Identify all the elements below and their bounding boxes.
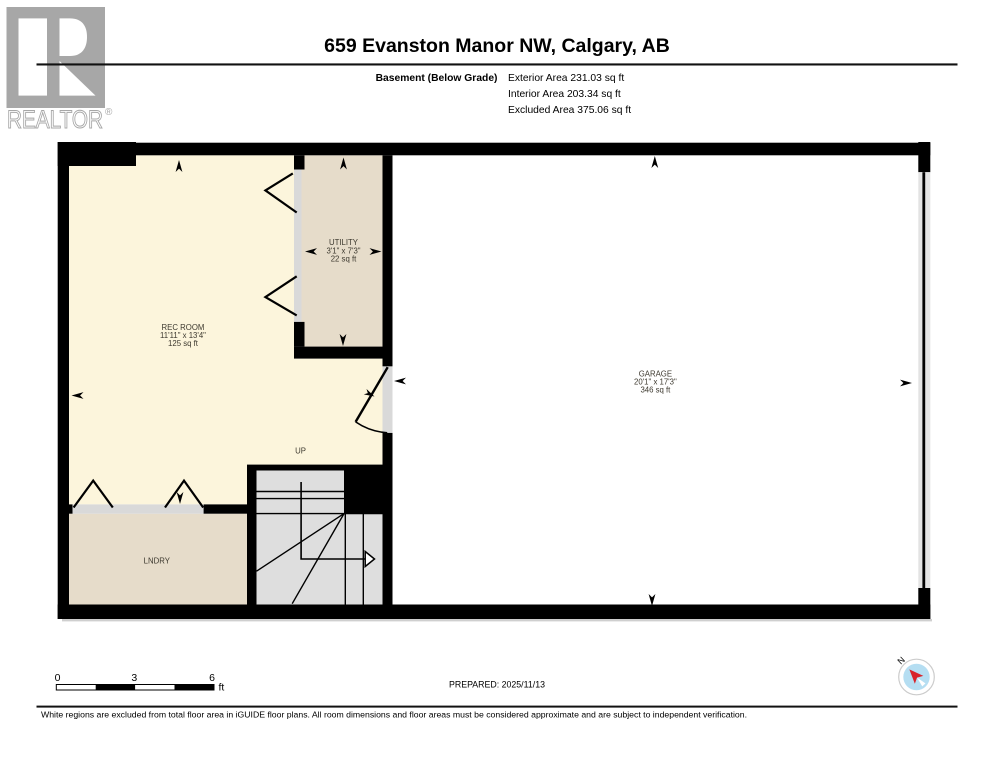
svg-text:22 sq ft: 22 sq ft: [331, 255, 357, 264]
svg-text:PREPARED: 2025/11/13: PREPARED: 2025/11/13: [449, 680, 545, 690]
svg-text:LNDRY: LNDRY: [144, 557, 171, 566]
svg-text:6: 6: [209, 672, 215, 684]
svg-text:Exterior Area 231.03 sq ft: Exterior Area 231.03 sq ft: [508, 73, 624, 84]
svg-text:659 Evanston Manor NW, Calgary: 659 Evanston Manor NW, Calgary, AB: [324, 35, 670, 57]
svg-text:Basement (Below Grade): Basement (Below Grade): [376, 73, 498, 84]
svg-text:125 sq ft: 125 sq ft: [168, 339, 199, 348]
svg-text:White regions are excluded fro: White regions are excluded from total fl…: [41, 710, 747, 720]
svg-text:3: 3: [131, 672, 137, 684]
svg-text:346 sq ft: 346 sq ft: [640, 386, 671, 395]
svg-text:UP: UP: [295, 447, 306, 456]
svg-text:®: ®: [105, 107, 113, 118]
svg-text:REALTOR: REALTOR: [7, 106, 103, 134]
svg-text:Interior Area 203.34 sq ft: Interior Area 203.34 sq ft: [508, 89, 621, 100]
svg-text:Excluded Area 375.06 sq ft: Excluded Area 375.06 sq ft: [508, 105, 631, 116]
svg-text:0: 0: [55, 672, 61, 684]
svg-text:ft: ft: [219, 682, 225, 694]
